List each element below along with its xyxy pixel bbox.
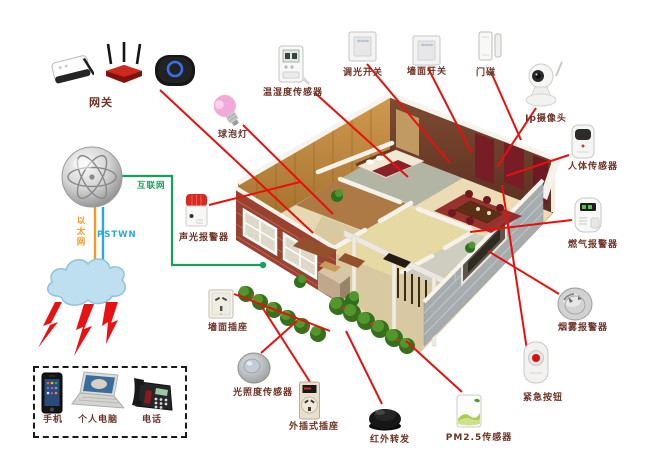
pm25-icon	[454, 392, 484, 430]
connection-line-ir_repeater	[346, 331, 382, 404]
deskphone-icon	[130, 374, 176, 414]
connection-line-smoke_alarm	[488, 251, 559, 294]
laptop-label: 个人电脑	[78, 412, 118, 425]
gateway-ap-icon	[48, 50, 94, 88]
dimmer-icon	[347, 30, 378, 63]
bulb-icon	[211, 92, 245, 130]
connection-line-wall_socket	[234, 294, 330, 331]
gas_alarm-label: 燃气报警器	[568, 237, 618, 250]
pstn-label: PSTWN	[97, 230, 137, 240]
ip_camera-icon	[521, 60, 565, 108]
gas_alarm-icon	[569, 194, 607, 236]
light_sensor-label: 光照度传感器	[233, 385, 293, 398]
smoke_alarm-label: 烟雾报警器	[558, 320, 608, 333]
lightning-bolt	[74, 304, 94, 356]
internet-sphere-icon	[62, 147, 122, 207]
ip_camera-label: Ip摄像头	[525, 111, 567, 124]
deskphone-label: 电话	[142, 412, 162, 425]
wall_socket-label: 墙面插座	[208, 320, 248, 333]
bulb-label: 球泡灯	[218, 127, 248, 140]
plug_socket-icon	[298, 380, 321, 421]
phone-label: 手机	[43, 412, 63, 425]
sound_light-icon	[182, 192, 211, 229]
wall_switch-icon	[411, 34, 442, 67]
temp_humidity-label: 温湿度传感器	[263, 85, 323, 98]
laptop-icon	[70, 370, 124, 414]
lightning-bolt	[38, 302, 62, 348]
connection-line-door_magnet	[491, 72, 521, 140]
gateway-hub-icon	[152, 53, 198, 88]
body_sensor-label: 人体传感器	[568, 159, 618, 172]
internet-link-endpoint	[260, 262, 266, 268]
smart-home-diagram: 网关 互联网 以太网 PSTWN 球泡灯温湿度传感器调光开关墙面开关门磁Ip摄像…	[0, 0, 654, 464]
dimmer-label: 调光开关	[343, 65, 383, 78]
wall_socket-icon	[207, 288, 235, 320]
temp_humidity-icon	[273, 42, 311, 88]
body_sensor-icon	[567, 122, 599, 162]
house-illustration	[236, 95, 560, 354]
smoke_alarm-icon	[556, 286, 594, 322]
gateway-router-icon	[103, 42, 145, 86]
door_magnet-icon	[476, 28, 504, 64]
lightning-bolt	[102, 302, 118, 344]
cloud-icon	[48, 259, 126, 305]
door_magnet-label: 门磁	[476, 65, 496, 78]
ir_repeater-label: 红外转发	[370, 432, 410, 445]
sound_light-label: 声光报警器	[179, 230, 229, 243]
connection-line-pm25	[406, 341, 462, 392]
pm25-label: PM2.5传感器	[446, 430, 513, 443]
light_sensor-icon	[237, 352, 271, 385]
lightning-bolts	[38, 302, 118, 356]
internet-label: 互联网	[137, 179, 166, 191]
wall_switch-label: 墙面开关	[407, 64, 447, 77]
gateway-label: 网关	[89, 94, 113, 110]
ethernet-label: 以太网	[74, 216, 86, 248]
phone-icon	[40, 372, 64, 414]
connection-line-light_sensor	[261, 321, 297, 353]
emergency-label: 紧急按钮	[523, 390, 563, 403]
plug_socket-label: 外插式插座	[289, 419, 339, 432]
ir_repeater-icon	[366, 404, 404, 432]
emergency-icon	[520, 340, 552, 386]
